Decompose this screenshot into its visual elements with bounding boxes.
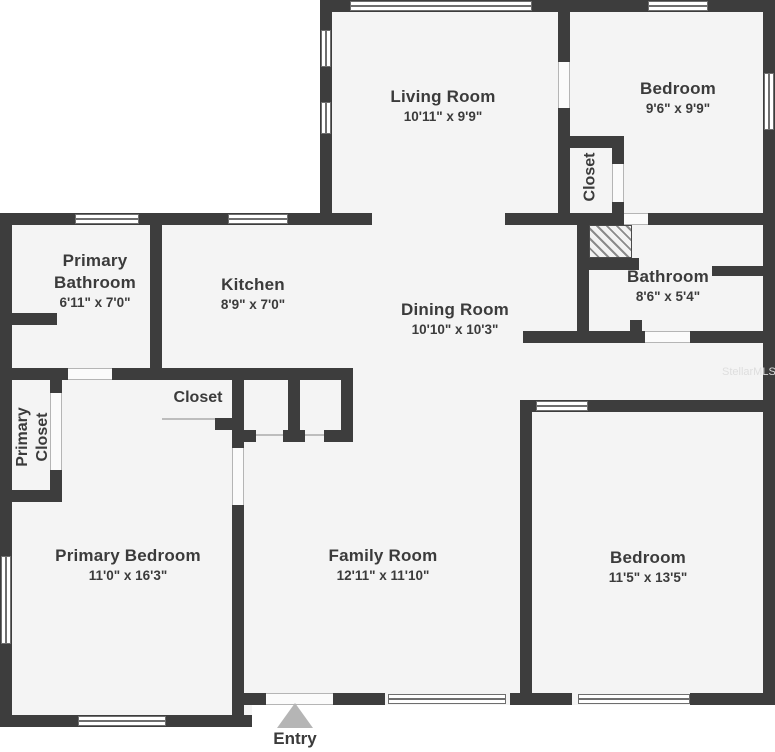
room-dims: 10'11" x 9'9": [343, 108, 543, 126]
door-opening: [232, 448, 244, 505]
floor-plan: Living Room 10'11" x 9'9" Bedroom 9'6" x…: [0, 0, 775, 752]
room-name: Closet: [158, 388, 238, 409]
wall: [283, 430, 305, 442]
room-name: Kitchen: [178, 274, 328, 296]
wall: [0, 313, 57, 325]
wall: [520, 400, 532, 705]
wall: [523, 331, 645, 343]
window: [321, 30, 331, 67]
window: [75, 214, 139, 224]
room-dims: 11'0" x 16'3": [28, 567, 228, 585]
hatched-utility-area: [589, 225, 632, 258]
room-label-kitchen: Kitchen 8'9" x 7'0": [178, 274, 328, 314]
wall: [232, 430, 256, 442]
room-dims: 8'6" x 5'4": [588, 288, 748, 306]
room-name: Primary Bathroom: [25, 250, 165, 294]
room-dims: 9'6" x 9'9": [598, 100, 758, 118]
room-label-family-room: Family Room 12'11" x 11'10": [283, 545, 483, 585]
room-label-primary-closet: Primary Closet: [8, 380, 58, 494]
wall: [630, 320, 642, 332]
room-label-closet-top: Closet: [566, 142, 614, 212]
room-label-bedroom-bottom: Bedroom 11'5" x 13'5": [568, 547, 728, 587]
door-threshold: [305, 434, 324, 436]
door-threshold: [162, 418, 215, 420]
door-opening: [645, 331, 690, 343]
room-label-dining-room: Dining Room 10'10" x 10'3": [370, 299, 540, 339]
room-fill: [0, 500, 252, 727]
window: [228, 214, 288, 224]
room-name: Living Room: [343, 86, 543, 108]
wall: [558, 0, 570, 64]
room-label-bedroom-top: Bedroom 9'6" x 9'9": [598, 78, 758, 118]
entry-arrow-icon: [277, 703, 313, 728]
window: [321, 102, 331, 134]
wall: [690, 693, 775, 705]
wall: [0, 213, 372, 225]
room-name: Bedroom: [568, 547, 728, 569]
door-opening: [558, 62, 570, 108]
room-name: Bedroom: [598, 78, 758, 100]
room-dims: 11'5" x 13'5": [568, 569, 728, 587]
room-dims: 12'11" x 11'10": [283, 567, 483, 585]
window: [648, 1, 708, 11]
wall: [215, 418, 244, 430]
room-dims: 6'11" x 7'0": [25, 294, 165, 312]
room-dims: 8'9" x 7'0": [178, 296, 328, 314]
watermark: StellarMLS: [722, 366, 775, 378]
door-opening: [624, 213, 648, 225]
room-name: Closet: [581, 153, 599, 202]
room-label-closet-mid: Closet: [158, 388, 238, 409]
wall: [333, 693, 385, 705]
room-dims: 10'10" x 10'3": [370, 321, 540, 339]
room-name: Primary Bedroom: [28, 545, 228, 567]
window: [78, 716, 166, 726]
wall: [690, 331, 775, 343]
window: [578, 694, 690, 704]
door-threshold: [256, 434, 283, 436]
room-name: Family Room: [283, 545, 483, 567]
window: [388, 694, 506, 704]
room-name: Primary Closet: [13, 407, 53, 467]
room-label-living-room: Living Room 10'11" x 9'9": [343, 86, 543, 126]
window: [764, 73, 774, 130]
window: [1, 556, 11, 644]
wall: [232, 505, 244, 727]
wall: [505, 213, 575, 225]
room-name: Dining Room: [370, 299, 540, 321]
window: [536, 401, 588, 411]
door-opening: [68, 368, 112, 380]
wall: [648, 213, 775, 225]
window: [350, 1, 532, 11]
room-label-bathroom: Bathroom 8'6" x 5'4": [588, 266, 748, 306]
room-label-primary-bedroom: Primary Bedroom 11'0" x 16'3": [28, 545, 228, 585]
room-name: Bathroom: [588, 266, 748, 288]
room-label-primary-bathroom: Primary Bathroom 6'11" x 7'0": [25, 250, 165, 312]
wall: [324, 430, 353, 442]
entry-label: Entry: [265, 729, 325, 749]
